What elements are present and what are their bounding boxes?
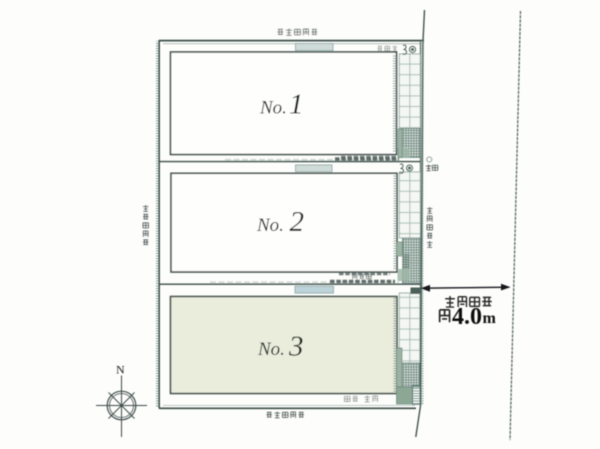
svg-text:N: N [116, 363, 125, 377]
svg-text:3: 3 [288, 331, 304, 363]
svg-text:No.: No. [257, 339, 285, 360]
svg-text:No.: No. [256, 215, 284, 236]
svg-text:1: 1 [289, 89, 304, 121]
svg-text:No.: No. [259, 98, 287, 119]
svg-text:2: 2 [290, 206, 305, 238]
svg-text:m: m [483, 310, 497, 327]
svg-text:4.0: 4.0 [452, 304, 482, 330]
